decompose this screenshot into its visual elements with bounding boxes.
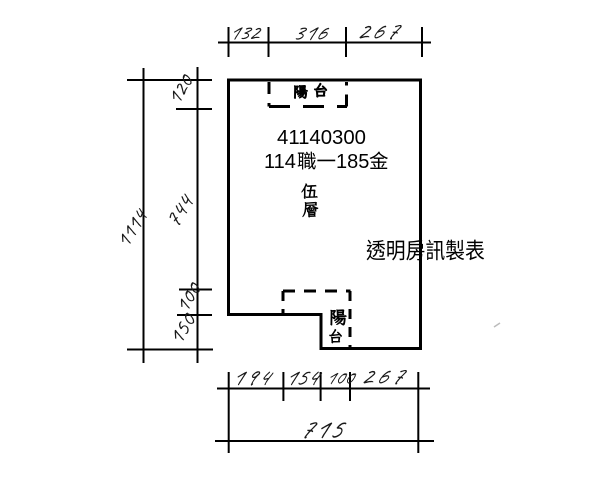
svg-text:41140300: 41140300 <box>277 127 366 149</box>
svg-text:185: 185 <box>336 151 369 173</box>
svg-text:114: 114 <box>264 151 296 173</box>
